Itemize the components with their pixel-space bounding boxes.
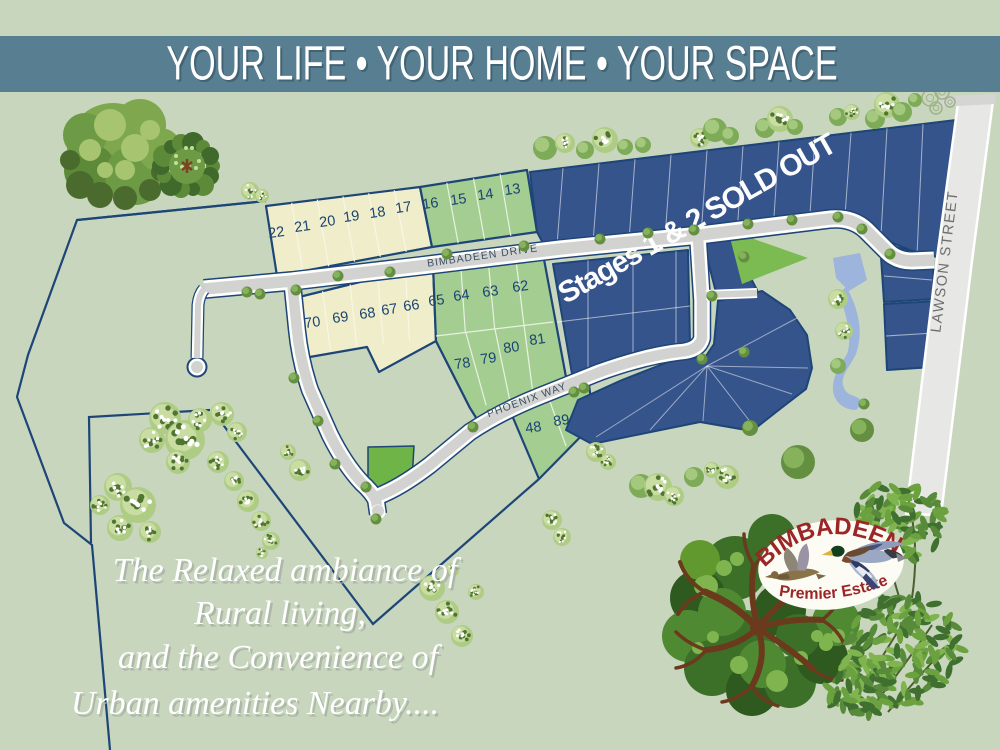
svg-text:62: 62 (511, 278, 529, 296)
svg-text:64: 64 (452, 287, 470, 305)
svg-text:81: 81 (528, 331, 546, 349)
svg-text:13: 13 (503, 181, 521, 199)
svg-text:YOUR LIFE • YOUR HOME • YOUR S: YOUR LIFE • YOUR HOME • YOUR SPACE (166, 36, 837, 90)
svg-text:15: 15 (449, 191, 467, 209)
svg-text:16: 16 (421, 195, 439, 213)
svg-text:48: 48 (524, 419, 542, 437)
svg-text:18: 18 (368, 204, 386, 222)
svg-text:20: 20 (318, 213, 336, 231)
svg-text:69: 69 (331, 309, 349, 327)
svg-text:Urban amenities Nearby....: Urban amenities Nearby.... (71, 685, 439, 722)
svg-text:22: 22 (267, 224, 285, 242)
svg-text:80: 80 (502, 339, 520, 357)
svg-text:78: 78 (453, 355, 471, 373)
svg-text:79: 79 (479, 350, 497, 368)
svg-text:65: 65 (427, 292, 445, 310)
svg-text:68: 68 (358, 305, 376, 323)
svg-text:17: 17 (394, 199, 412, 217)
svg-text:66: 66 (402, 297, 420, 315)
svg-text:The Relaxed ambiance of: The Relaxed ambiance of (113, 552, 462, 589)
svg-text:and the Convenience of: and the Convenience of (118, 639, 443, 676)
svg-text:89: 89 (552, 412, 570, 430)
svg-text:70: 70 (303, 314, 321, 332)
svg-text:67: 67 (380, 301, 398, 319)
svg-text:14: 14 (476, 186, 494, 204)
svg-text:63: 63 (481, 283, 499, 301)
svg-text:21: 21 (293, 218, 311, 236)
svg-text:19: 19 (342, 208, 360, 226)
svg-text:Rural living,: Rural living, (193, 595, 366, 632)
